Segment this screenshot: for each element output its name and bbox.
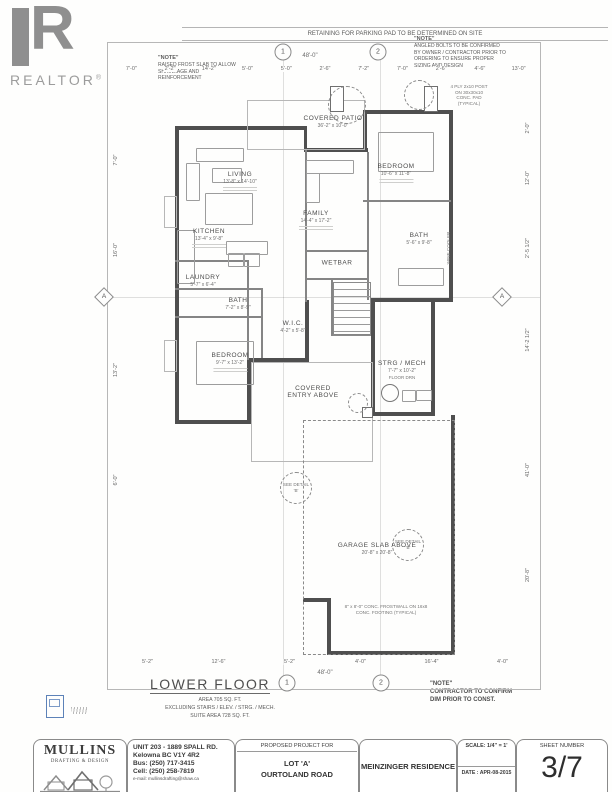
dim-bottom: 5'-2" <box>283 659 296 665</box>
email-line: e-mail: mullinsdrafting@shaw.ca <box>133 776 234 781</box>
company-name: MULLINS <box>34 743 126 759</box>
furniture <box>306 160 354 174</box>
dim-top: 5'-0" <box>241 66 254 72</box>
dim-right: 2'-0" <box>525 123 531 134</box>
scale-value: SCALE: 1/4" = 1' <box>458 740 515 752</box>
room-dims: 7'-2" x 8'-9" <box>225 305 250 311</box>
titleblock-residence: MEINZINGER RESIDENCE <box>359 739 457 792</box>
garage-slab-outline <box>303 420 455 655</box>
annotation-post-note: 4 PLY 2x10 POST ON 30x30x10 CONC. PAD (T… <box>448 84 490 107</box>
dim-top: 7'-0" <box>396 66 409 72</box>
grid-bubble-2-top: 2 <box>370 44 387 61</box>
room-dims: 14'-4" x 17'-2" <box>299 218 333 224</box>
dim-left: 6'-0" <box>113 475 119 486</box>
room-label-covered-entry: COVERED ENTRY ABOVE <box>284 385 342 399</box>
furniture <box>416 390 432 401</box>
room-label-bath-left: BATH7'-2" x 8'-9" <box>225 297 250 311</box>
room-label-covered-patio: COVERED PATIO36'-2" x 10'-0" <box>304 115 363 129</box>
illegible-note <box>213 371 247 373</box>
annotation-see-detail-1: SEE DETAIL 'B' <box>282 482 310 493</box>
illegible-note <box>379 182 413 184</box>
room-name: LIVING <box>223 171 257 178</box>
company-house-sketch-icon <box>38 764 122 792</box>
furniture <box>398 268 444 286</box>
grid-diamond-right-label: A <box>496 291 508 303</box>
titleblock-company: MULLINS DRAFTING & DESIGN <box>33 739 127 792</box>
phone-bus: Bus: (250) 717-3415 <box>133 760 234 767</box>
overall-dim-top: 48'-0" <box>301 53 318 59</box>
furniture <box>402 390 416 402</box>
room-dims: 10'-6" x 11'-8" <box>377 171 414 177</box>
date-value: DATE : APR-08-2015 <box>458 767 515 776</box>
partition-wall <box>175 288 263 290</box>
titleblock-scale-date: SCALE: 1/4" = 1' DATE : APR-08-2015 <box>457 739 516 792</box>
grid-bubble-1-bottom: 1 <box>279 675 296 692</box>
area-line: AREA 705 SQ. FT. <box>140 697 300 705</box>
furniture <box>196 148 244 162</box>
room-label-bedroom-upper: BEDROOM10'-6" x 11'-8" <box>377 163 414 183</box>
floor-plan: LIVING13'-8" x 14'-10"KITCHEN13'-4" x 9'… <box>0 0 612 735</box>
furniture <box>306 173 320 203</box>
dim-left: 16'-0" <box>113 243 119 257</box>
illegible-note <box>213 368 247 370</box>
excluding-line: EXCLUDING STAIRS / ELEV. / STRG. / MECH. <box>140 705 300 713</box>
room-name: WETBAR <box>322 260 353 267</box>
grid-line-a <box>96 297 540 298</box>
project-header: PROPOSED PROJECT FOR <box>237 740 357 752</box>
dim-right: 41'-0" <box>525 463 531 477</box>
room-label-kitchen: KITCHEN13'-4" x 9'-8" <box>192 228 226 248</box>
dim-top: 2'-6" <box>435 66 448 72</box>
dim-bottom: 16'-4" <box>423 659 439 665</box>
dim-top: 14'-2" <box>201 66 217 72</box>
dim-top: 5'-0" <box>280 66 293 72</box>
window-well <box>164 196 177 228</box>
room-name: COVERED ENTRY ABOVE <box>284 385 342 399</box>
sheet-title: LOWER FLOOR <box>150 676 270 694</box>
residence-name: MEINZINGER RESIDENCE <box>360 762 456 771</box>
room-label-laundry: LAUNDRY5'-7" x 6'-4" <box>186 274 220 288</box>
room-label-bedroom-lower: BEDROOM9'-7" x 13'-2" <box>211 352 248 372</box>
annotation-frostwall-note: 8" x 8'-0" CONC. FROSTWALL ON 16x8 CONC.… <box>340 604 432 615</box>
hot-water-tank-icon <box>381 384 399 402</box>
room-dims: 9'-7" x 13'-2" <box>211 360 248 366</box>
partition-wall <box>363 200 451 202</box>
dim-top: 2'-6" <box>319 66 332 72</box>
room-dims: 5'-6" x 9'-8" <box>406 240 431 246</box>
dim-top: 2'-2" <box>164 66 177 72</box>
address-line-1: UNIT 203 - 1889 SPALL RD. <box>133 744 234 751</box>
room-name: COVERED PATIO <box>304 115 363 122</box>
dim-top: 4'-6" <box>473 66 486 72</box>
room-dims: 5'-7" x 6'-4" <box>186 282 220 288</box>
dim-right: 14'-2 1/2" <box>525 328 531 351</box>
room-label-strg-mech: STRG / MECH7'-7" x 10'-2"FLOOR DRN <box>378 360 426 380</box>
room-name: BATH <box>406 232 431 239</box>
room-name: BEDROOM <box>377 163 414 170</box>
dim-top: 7'-2" <box>357 66 370 72</box>
partition-wall <box>175 316 263 318</box>
grid-bubble-1-top: 1 <box>275 44 292 61</box>
dim-right: 20'-8" <box>525 568 531 582</box>
furniture <box>244 253 260 267</box>
room-dims: 7'-7" x 10'-2" <box>378 368 426 374</box>
dim-top: 7'-0" <box>125 66 138 72</box>
dim-bottom: 4'-0" <box>496 659 509 665</box>
illegible-note <box>379 179 413 181</box>
window-well <box>164 340 177 372</box>
annotation-see-detail-2: SEE DETAIL 'B' <box>394 539 422 550</box>
illegible-note <box>192 244 226 246</box>
stamp-icon <box>46 695 64 718</box>
dim-bottom: 5'-2" <box>141 659 154 665</box>
sheet-number-header: SHEET NUMBER <box>517 740 607 749</box>
dim-bottom: 12'-6" <box>210 659 226 665</box>
room-dims: 36'-2" x 10'-0" <box>304 123 363 129</box>
annotation-wine-cooler: WINE COOLER <box>446 228 452 268</box>
suite-area-line: SUITE AREA 728 SQ. FT. <box>140 713 300 721</box>
room-label-living: LIVING13'-8" x 14'-10" <box>223 171 257 191</box>
room-dims: 20'-8" x 20'-8" <box>338 550 417 556</box>
project-road: OURTOLAND ROAD <box>236 770 358 779</box>
room-label-family: FAMILY14'-4" x 17'-2" <box>299 210 333 230</box>
illegible-note <box>192 247 226 249</box>
dim-left: 7'-0" <box>113 155 119 166</box>
room-dims: 4'-2" x 5'-8" <box>280 328 305 334</box>
room-dims: 13'-4" x 9'-8" <box>192 236 226 242</box>
furniture <box>205 193 253 225</box>
blueprint-page: R REALTOR® RETAINING FOR PARKING PAD TO … <box>0 0 612 792</box>
dim-right: 12'-0" <box>525 171 531 185</box>
detail-circle <box>348 393 368 413</box>
room-name: W.I.C. <box>280 320 305 327</box>
titleblock-sheet: SHEET NUMBER 3/7 <box>516 739 608 792</box>
partition-wall <box>307 278 367 280</box>
project-lot: LOT 'A' <box>236 759 358 768</box>
furniture <box>228 253 244 267</box>
furniture <box>186 163 200 201</box>
partition-wall <box>307 250 367 252</box>
address-line-2: Kelowna BC V1Y 4R2 <box>133 752 234 759</box>
grid-diamond-left-label: A <box>98 291 110 303</box>
wall-segment <box>175 420 251 424</box>
room-name: BATH <box>225 297 250 304</box>
dim-top: 13'-0" <box>511 66 527 72</box>
dim-left: 13'-2" <box>113 363 119 377</box>
sheet-number-value: 3/7 <box>517 751 607 785</box>
wall-segment <box>363 110 453 114</box>
detail-circle <box>404 80 434 110</box>
room-extra: FLOOR DRN <box>378 375 426 380</box>
illegible-note <box>299 229 333 231</box>
room-name: KITCHEN <box>192 228 226 235</box>
room-label-bath-right: BATH5'-6" x 9'-8" <box>406 232 431 246</box>
illegible-note <box>223 190 257 192</box>
signature-scribble <box>71 707 87 714</box>
wall-segment <box>449 110 453 302</box>
wall-segment <box>371 412 435 416</box>
room-name: BEDROOM <box>211 352 248 359</box>
illegible-note <box>223 187 257 189</box>
room-label-wic: W.I.C.4'-2" x 5'-8" <box>280 320 305 334</box>
room-name: STRG / MECH <box>378 360 426 367</box>
area-summary: AREA 705 SQ. FT. EXCLUDING STAIRS / ELEV… <box>140 697 300 720</box>
room-name: LAUNDRY <box>186 274 220 281</box>
titleblock-address: UNIT 203 - 1889 SPALL RD. Kelowna BC V1Y… <box>127 739 235 792</box>
partition-wall <box>367 152 369 300</box>
overall-dim-bottom: 48'-0" <box>316 670 333 676</box>
wall-segment <box>371 298 453 302</box>
room-label-wetbar: WETBAR <box>322 260 353 267</box>
grid-bubble-2-bottom: 2 <box>373 675 390 692</box>
dim-bottom: 4'-0" <box>354 659 367 665</box>
phone-cell: Cell: (250) 258-7819 <box>133 768 234 775</box>
dim-right: 2'-5 1/2" <box>525 238 531 258</box>
room-name: FAMILY <box>299 210 333 217</box>
titleblock-project: PROPOSED PROJECT FOR LOT 'A' OURTOLAND R… <box>235 739 359 792</box>
stairs <box>333 282 371 336</box>
partition-wall <box>261 288 263 358</box>
room-dims: 13'-8" x 14'-10" <box>223 179 257 185</box>
illegible-note <box>299 226 333 228</box>
